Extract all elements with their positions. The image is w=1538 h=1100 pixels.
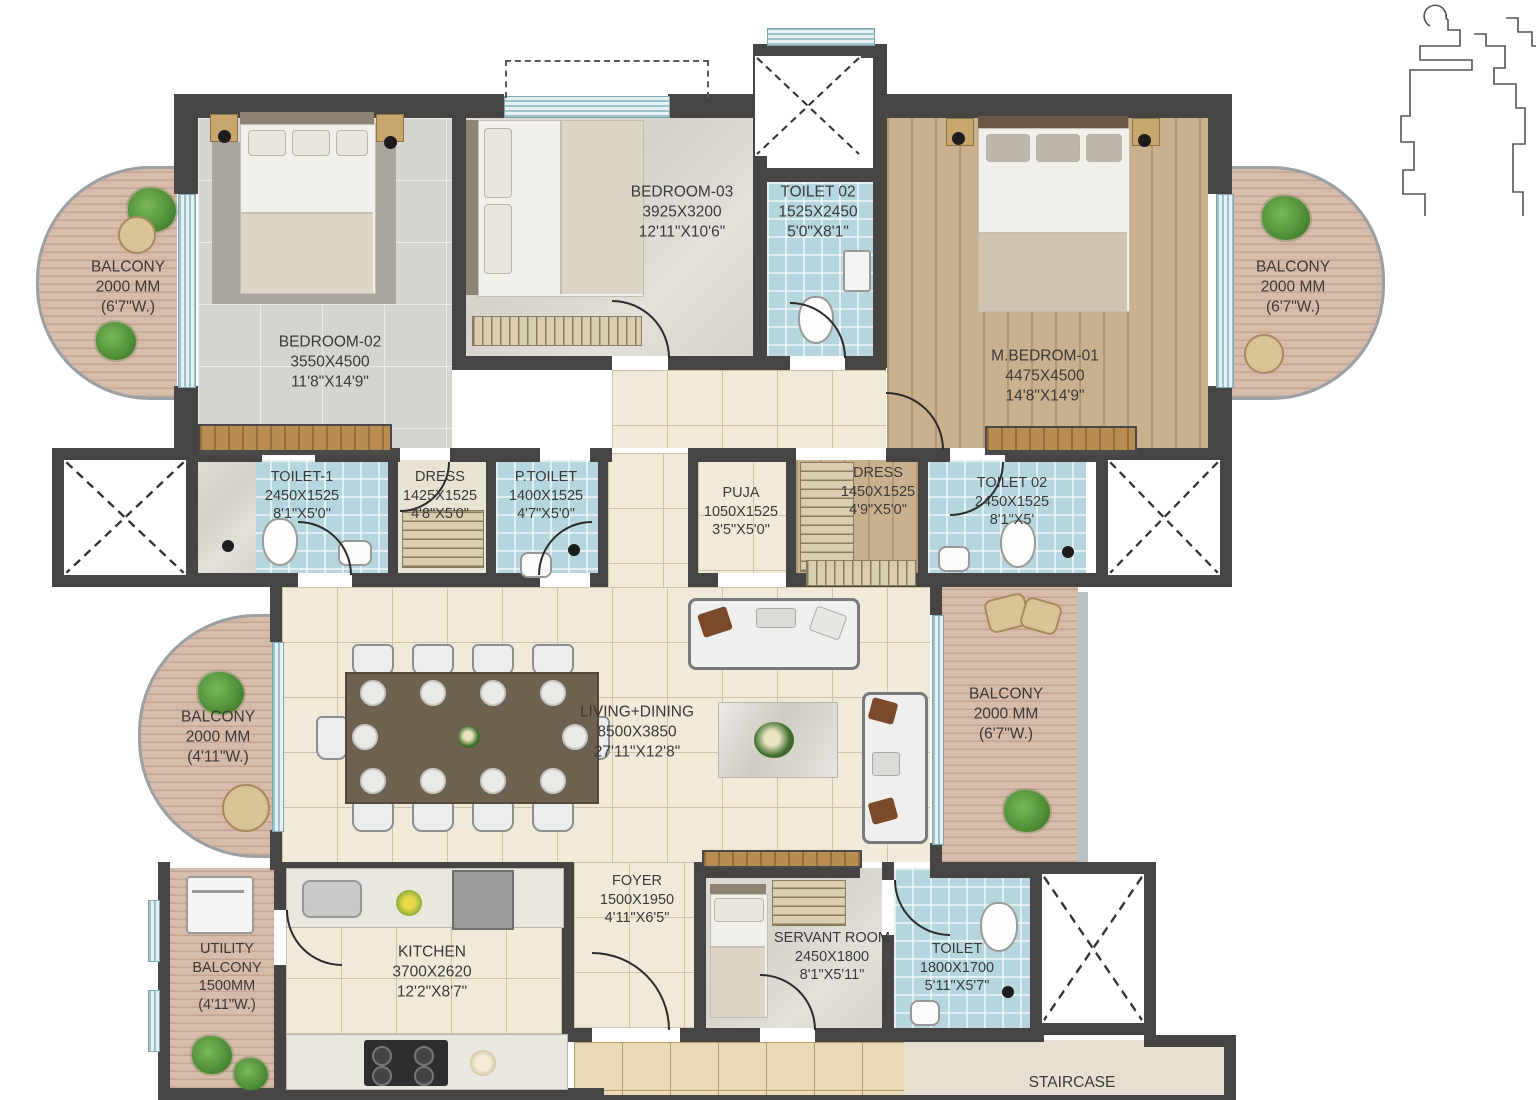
room-name: TOILET 02 [778, 182, 857, 202]
wall [352, 573, 486, 587]
wall [930, 587, 942, 615]
wardrobe [198, 424, 392, 455]
room-dim-mm: 2450X1800 [774, 948, 890, 967]
room-dim-mm: 3925X3200 [631, 202, 734, 222]
shower-icon [1002, 986, 1014, 998]
window [504, 96, 670, 118]
wall [598, 455, 608, 587]
shower-icon [1062, 546, 1074, 558]
washing-machine [186, 876, 254, 934]
canopy-projection [505, 60, 709, 98]
label-dress-left: DRESS 1425X1525 4'8"X5'0" [403, 468, 477, 524]
label-kitchen: KITCHEN 3700X2620 12'2"X8'7" [392, 942, 471, 1001]
label-balcony-ml: BALCONY 2000 MM (4'11"W.) [181, 707, 255, 766]
sink [938, 546, 970, 572]
window [178, 194, 196, 388]
wall [845, 356, 886, 370]
shaft-left [52, 448, 198, 587]
label-ptoilet: P.TOILET 1400X1525 4'7"X5'0" [509, 468, 583, 524]
sofa-cushion [872, 752, 900, 776]
flower-centerpiece [754, 722, 794, 758]
room-dim-mm: 3550X4500 [279, 352, 382, 372]
floor-corridor-bottom [574, 1042, 904, 1095]
balcony-table [1244, 334, 1284, 374]
room-dim-mm: 3700X2620 [392, 962, 471, 982]
balcony-table [222, 784, 270, 832]
wall [198, 573, 298, 587]
room-dim-ft: 5'0"X8'1" [778, 222, 857, 242]
wall [452, 356, 612, 370]
wall [388, 455, 398, 587]
plant-icon [1004, 790, 1050, 832]
wall [274, 862, 286, 910]
wall [694, 862, 706, 1040]
wall [873, 44, 887, 180]
wall [1144, 1035, 1236, 1047]
room-name: FOYER [600, 872, 674, 891]
plant-icon [1262, 196, 1310, 240]
room-dim-mm: 1425X1525 [403, 487, 477, 506]
room-dim-ft: 4'9"X5'0" [841, 501, 915, 520]
wall [882, 862, 894, 880]
elevator-shaft-top [755, 56, 861, 156]
room-dim-ft: 14'8"X14'9" [991, 386, 1099, 406]
label-bedroom03: BEDROOM-03 3925X3200 12'11"X10'6" [631, 182, 734, 241]
balcony-table [118, 216, 156, 254]
label-living: LIVING+DINING 8500X3850 27'11"X12'8" [580, 702, 694, 761]
label-balcony-tl: BALCONY 2000 MM (6'7"W.) [91, 257, 165, 316]
bowl [470, 1050, 496, 1076]
room-dim-ft: 3'5"X5'0" [704, 521, 778, 540]
room-dim-ft: 8'1"X5'11" [774, 966, 890, 985]
wall [1208, 94, 1232, 194]
wall [596, 1095, 1236, 1100]
room-dim-mm: 1500MM [192, 977, 261, 996]
room-name: LIVING+DINING [580, 702, 694, 722]
room-dim-ft: 4'11"X6'5" [600, 909, 674, 928]
wardrobe [985, 426, 1137, 455]
room-dim-ft: (6'7"W.) [1256, 297, 1330, 317]
shaft-right [1096, 448, 1232, 587]
room-dim-ft: 11'8"X14'9" [279, 372, 382, 392]
toilet-fixture [262, 518, 298, 566]
room-name: KITCHEN [392, 942, 471, 962]
wall [918, 455, 928, 587]
wall [174, 94, 198, 194]
label-balcony-mr: BALCONY 2000 MM (6'7"W.) [969, 684, 1043, 743]
wall [668, 356, 766, 370]
room-dim-ft: 4'7"X5'0" [509, 505, 583, 524]
room-dim-ft: 12'2"X8'7" [392, 982, 471, 1002]
burner-icon [372, 1046, 392, 1066]
plant-icon [96, 322, 136, 360]
room-name: BEDROOM-02 [279, 332, 382, 352]
floor-toilet1-shower [198, 460, 256, 573]
burner-icon [414, 1066, 434, 1086]
label-toilet1: TOILET-1 2450X1525 8'1"X5'0" [265, 468, 339, 524]
wall [158, 862, 170, 1100]
room-name: BALCONY [91, 257, 165, 277]
dress-wardrobe [806, 560, 916, 586]
room-dim-mm: 1050X1525 [704, 503, 778, 522]
wall [452, 118, 466, 362]
room-dim-mm: 2000 MM [1256, 277, 1330, 297]
label-toilet-bottom: TOILET 1800X1700 5'11"X5'7" [920, 940, 994, 996]
label-toilet02-right: TOILET 02 2450X1525 8'1"X5' [975, 474, 1049, 530]
room-name2: BALCONY [192, 958, 261, 977]
burner-icon [372, 1066, 392, 1086]
wall [694, 1028, 760, 1042]
wall [1224, 1047, 1236, 1095]
wall [688, 455, 698, 587]
room-dim-mm: 1400X1525 [509, 487, 583, 506]
room-dim-mm: 1450X1525 [841, 483, 915, 502]
wall [918, 573, 1098, 587]
wall [753, 356, 790, 370]
servant-wardrobe [772, 880, 846, 926]
label-servant: SERVANT ROOM 2450X1800 8'1"X5'11" [774, 929, 890, 985]
tv-console [702, 850, 862, 868]
label-toilet02-top: TOILET 02 1525X2450 5'0"X8'1" [778, 182, 857, 241]
window [148, 990, 160, 1052]
room-dim-mm: 2450X1525 [265, 487, 339, 506]
sofa-cushion [756, 608, 796, 628]
window [767, 28, 875, 46]
room-dim-mm: 1500X1950 [600, 891, 674, 910]
wall [753, 168, 887, 182]
label-bedroom02: BEDROOM-02 3550X4500 11'8"X14'9" [279, 332, 382, 391]
room-dim-ft: 8'1"X5'0" [265, 505, 339, 524]
room-dim-ft: 8'1"X5' [975, 511, 1049, 530]
window [148, 900, 160, 962]
room-dim-ft: 4'8"X5'0" [403, 505, 477, 524]
wall [688, 573, 718, 587]
plant-icon [192, 1036, 232, 1074]
wall [590, 573, 608, 587]
refrigerator [452, 870, 514, 930]
room-dim-ft: 12'11"X10'6" [631, 222, 734, 242]
key-plan [1386, 2, 1536, 216]
sink [910, 1000, 940, 1026]
label-staircase: STAIRCASE [1029, 1073, 1116, 1093]
washing-machine-detail [192, 890, 244, 893]
room-name: BALCONY [1256, 257, 1330, 277]
room-name: M.BEDROM-01 [991, 346, 1099, 366]
room-name: BALCONY [181, 707, 255, 727]
wall-lamp-icon [952, 132, 965, 145]
shower-icon [222, 540, 234, 552]
wall [486, 455, 496, 587]
label-puja: PUJA 1050X1525 3'5"X5'0" [704, 484, 778, 540]
room-name: UTILITY [192, 940, 261, 959]
room-dim-mm: 2000 MM [181, 727, 255, 747]
room-dim-ft: (6'7"W.) [969, 724, 1043, 744]
room-name: STAIRCASE [1029, 1073, 1116, 1093]
shaft-bottom [1030, 862, 1156, 1035]
wall-lamp-icon [218, 130, 231, 143]
window [1216, 194, 1234, 388]
wall-lamp-icon [1138, 134, 1151, 147]
room-dim-mm: 1525X2450 [778, 202, 857, 222]
room-dim-ft: (4'11"W.) [181, 747, 255, 767]
balcony-railing [1078, 592, 1088, 862]
label-foyer: FOYER 1500X1950 4'11"X6'5" [600, 872, 674, 928]
window [272, 642, 284, 832]
room-dim-mm: 2000 MM [969, 704, 1043, 724]
wall [815, 1028, 1044, 1042]
room-name: DRESS [403, 468, 477, 487]
room-name: PUJA [704, 484, 778, 503]
toilet-cistern [843, 250, 871, 292]
room-name: P.TOILET [509, 468, 583, 487]
wall-lamp-icon [384, 136, 397, 149]
room-dim-ft: (6'7"W.) [91, 297, 165, 317]
room-name: TOILET-1 [265, 468, 339, 487]
room-dim-ft: (4'11"W.) [192, 996, 261, 1015]
room-dim-ft: 5'11"X5'7" [920, 977, 994, 996]
wall [786, 455, 796, 587]
room-name: TOILET 02 [975, 474, 1049, 493]
wall [688, 448, 796, 462]
wall [270, 587, 282, 642]
label-utility: UTILITY BALCONY 1500MM (4'11"W.) [192, 940, 261, 1014]
room-dim-mm: 2450X1525 [975, 493, 1049, 512]
label-dress-right: DRESS 1450X1525 4'9"X5'0" [841, 464, 915, 520]
floor-corridor-mid [608, 453, 688, 587]
floor-corridor-upper [612, 370, 886, 448]
wall [274, 965, 286, 1100]
window [932, 615, 944, 845]
wall [887, 94, 1232, 118]
room-dim-mm: 1800X1700 [920, 959, 994, 978]
room-dim-mm: 2000 MM [91, 277, 165, 297]
burner-icon [414, 1046, 434, 1066]
label-mbedroom: M.BEDROM-01 4475X4500 14'8"X14'9" [991, 346, 1099, 405]
room-name: BALCONY [969, 684, 1043, 704]
floor-plan: BEDROOM-02 3550X4500 11'8"X14'9" BEDROOM… [0, 0, 1538, 1100]
room-name: TOILET [920, 940, 994, 959]
room-name: SERVANT ROOM [774, 929, 890, 948]
fruit-plate [396, 890, 422, 916]
room-name: DRESS [841, 464, 915, 483]
room-dim-mm: 4475X4500 [991, 366, 1099, 386]
room-name: BEDROOM-03 [631, 182, 734, 202]
plant-icon [234, 1058, 268, 1090]
room-dim-ft: 27'11"X12'8" [580, 742, 694, 762]
label-balcony-tr: BALCONY 2000 MM (6'7"W.) [1256, 257, 1330, 316]
room-dim-mm: 8500X3850 [580, 722, 694, 742]
